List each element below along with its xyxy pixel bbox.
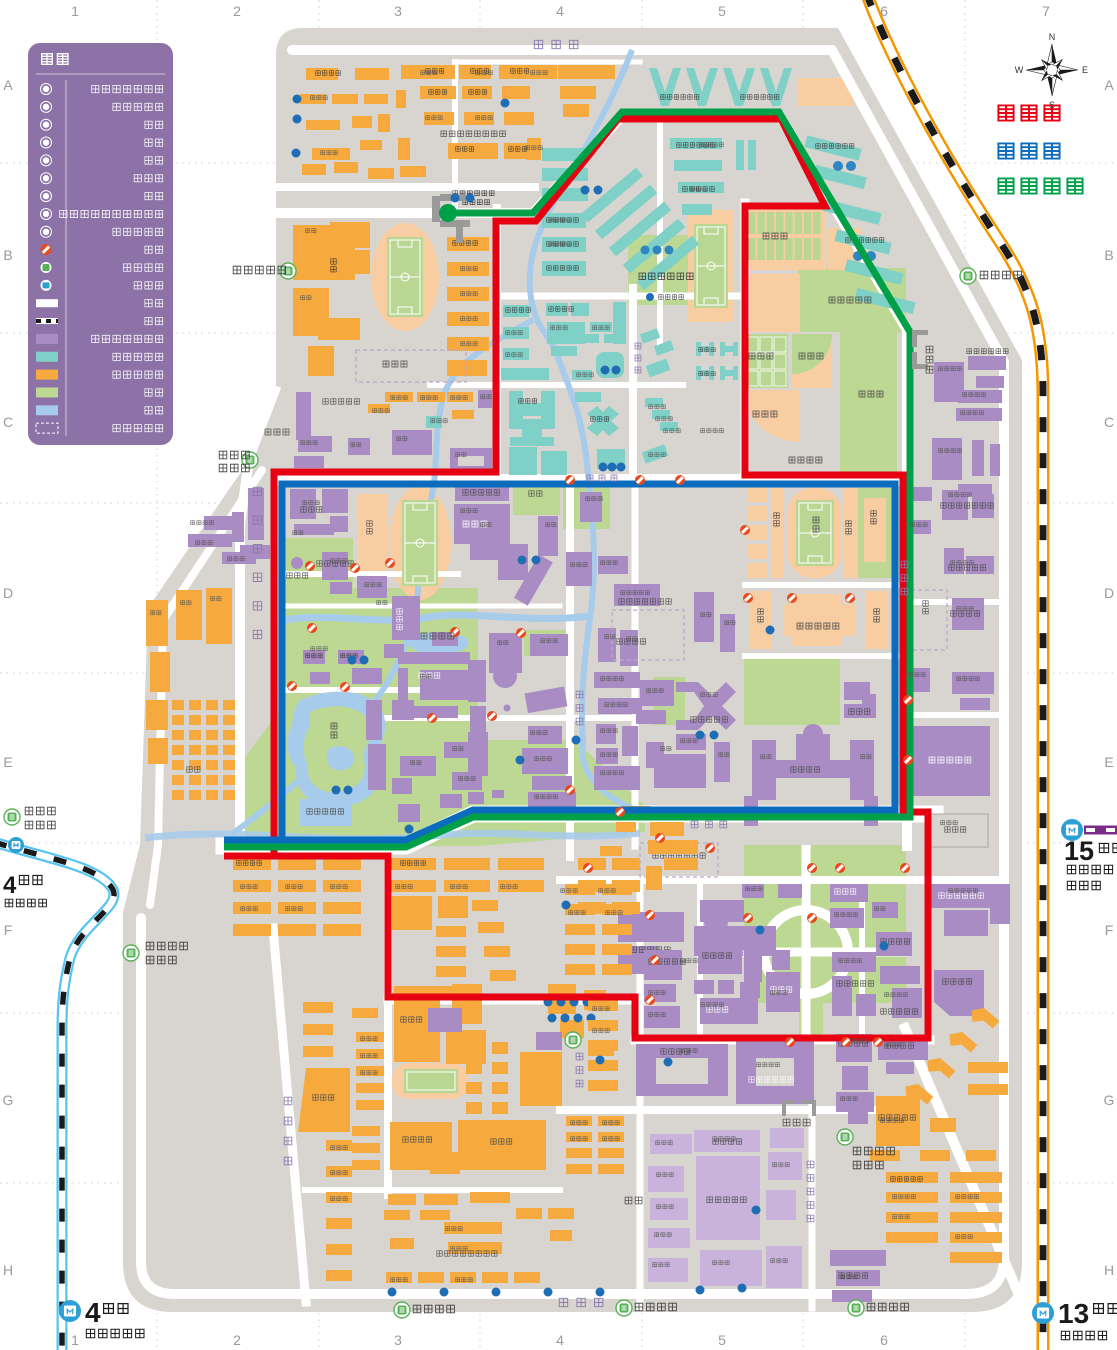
svg-text:6: 6	[880, 1332, 888, 1348]
svg-text:4: 4	[556, 3, 564, 19]
svg-text:4: 4	[85, 1297, 101, 1328]
svg-text:W: W	[1015, 65, 1024, 75]
svg-text:C: C	[1104, 414, 1114, 430]
svg-text:A: A	[1104, 77, 1114, 93]
svg-text:2: 2	[233, 3, 241, 19]
svg-text:1: 1	[71, 3, 79, 19]
svg-text:C: C	[3, 414, 13, 430]
svg-text:H: H	[3, 1262, 13, 1278]
svg-text:2: 2	[233, 1332, 241, 1348]
svg-text:H: H	[1104, 1262, 1114, 1278]
svg-text:4: 4	[3, 872, 17, 899]
svg-text:3: 3	[394, 3, 402, 19]
svg-text:7: 7	[1042, 3, 1050, 19]
svg-text:B: B	[1104, 247, 1113, 263]
svg-text:G: G	[3, 1092, 14, 1108]
svg-text:N: N	[1049, 32, 1056, 42]
svg-text:5: 5	[718, 3, 726, 19]
svg-text:4: 4	[556, 1332, 564, 1348]
svg-text:A: A	[3, 77, 13, 93]
svg-text:3: 3	[394, 1332, 402, 1348]
svg-text:G: G	[1104, 1092, 1115, 1108]
svg-text:E: E	[1104, 754, 1113, 770]
svg-text:E: E	[1082, 65, 1088, 75]
svg-text:5: 5	[718, 1332, 726, 1348]
svg-text:15: 15	[1064, 836, 1094, 866]
svg-text:F: F	[4, 922, 13, 938]
svg-text:E: E	[3, 754, 12, 770]
svg-text:B: B	[3, 247, 12, 263]
svg-text:S: S	[1049, 100, 1055, 110]
svg-text:1: 1	[71, 1332, 79, 1348]
svg-text:F: F	[1105, 922, 1114, 938]
svg-text:D: D	[3, 585, 13, 601]
svg-text:13: 13	[1058, 1298, 1089, 1329]
svg-text:D: D	[1104, 585, 1114, 601]
